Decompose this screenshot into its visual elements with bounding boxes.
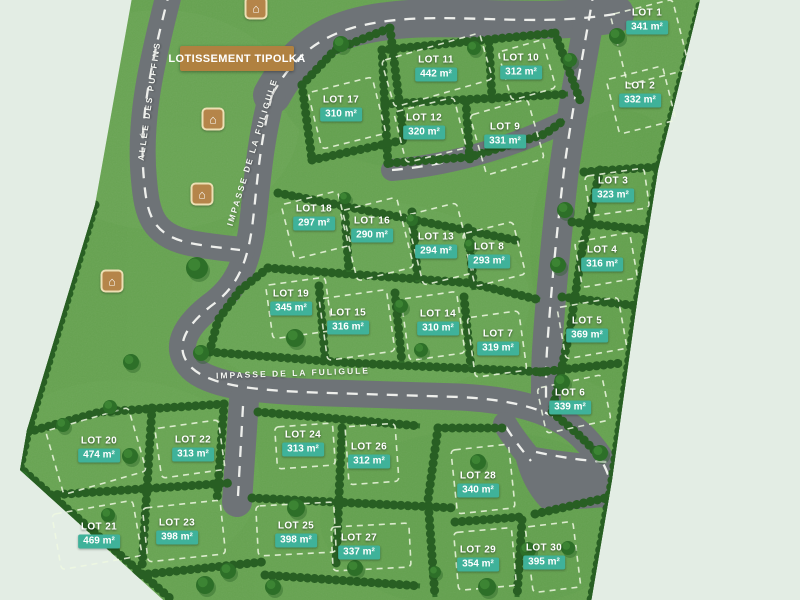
- lot-23-area-badge: 398 m²: [156, 531, 198, 545]
- lot-8-label: LOT 8: [474, 242, 504, 253]
- tree-highlight: [407, 215, 414, 222]
- lot-21-area-badge: 469 m²: [78, 535, 120, 549]
- lot-20-label: LOT 20: [81, 436, 117, 447]
- tree-highlight: [57, 419, 65, 427]
- lot-3-label: LOT 3: [598, 176, 628, 187]
- house-icon: ⌂: [245, 0, 268, 20]
- lot-25-area-badge: 398 m²: [275, 534, 317, 548]
- tree-icon: [685, 51, 703, 69]
- lot-marker-20[interactable]: LOT 20474 m²: [78, 436, 120, 463]
- tree-highlight: [188, 259, 200, 271]
- lot-24-area-badge: 313 m²: [282, 443, 324, 457]
- lot-22-label: LOT 22: [175, 435, 211, 446]
- house-icon: ⌂: [191, 183, 214, 206]
- tree-highlight: [395, 300, 403, 308]
- tree-highlight: [480, 579, 490, 589]
- site-plan-map: LOTISSEMENT TIPOLKA ALLÉE DES PUFFINS IM…: [0, 0, 800, 600]
- tree-highlight: [594, 446, 603, 455]
- lot-marker-30[interactable]: LOT 30395 m²: [523, 543, 565, 570]
- tree-highlight: [430, 567, 437, 574]
- house-icon: ⌂: [202, 108, 225, 131]
- tree-highlight: [556, 375, 565, 384]
- lot-16-area-badge: 290 m²: [351, 229, 393, 243]
- lot-marker-11[interactable]: LOT 11442 m²: [415, 55, 457, 82]
- tree-icon: [15, 471, 29, 485]
- lot-marker-12[interactable]: LOT 12320 m²: [403, 113, 445, 140]
- lot-4-label: LOT 4: [587, 245, 617, 256]
- lot-8-area-badge: 293 m²: [468, 255, 510, 269]
- lot-marker-13[interactable]: LOT 13294 m²: [415, 232, 457, 259]
- lot-2-area-badge: 332 m²: [619, 94, 661, 108]
- lot-2-label: LOT 2: [625, 81, 655, 92]
- hedge-bushes: [466, 102, 470, 163]
- tree-highlight: [340, 193, 347, 200]
- lot-marker-26[interactable]: LOT 26312 m²: [348, 442, 390, 469]
- lot-marker-7[interactable]: LOT 7319 m²: [477, 329, 519, 356]
- tree-highlight: [267, 580, 276, 589]
- lot-29-label: LOT 29: [460, 545, 496, 556]
- lot-7-label: LOT 7: [483, 329, 513, 340]
- lot-5-area-badge: 369 m²: [566, 329, 608, 343]
- lot-26-label: LOT 26: [351, 442, 387, 453]
- tree-shadow: [687, 54, 705, 72]
- lot-marker-8[interactable]: LOT 8293 m²: [468, 242, 510, 269]
- tree-highlight: [611, 29, 620, 38]
- lot-29-area-badge: 354 m²: [457, 558, 499, 572]
- lot-marker-25[interactable]: LOT 25398 m²: [275, 521, 317, 548]
- road-turnaround: [516, 444, 640, 509]
- lot-14-label: LOT 14: [420, 309, 456, 320]
- lot-marker-19[interactable]: LOT 19345 m²: [270, 289, 312, 316]
- lot-6-area-badge: 339 m²: [549, 401, 591, 415]
- tree-highlight: [198, 577, 208, 587]
- tree-highlight: [289, 500, 299, 510]
- tree-icon: [34, 515, 50, 531]
- lot-marker-1[interactable]: LOT 1341 m²: [626, 8, 668, 35]
- lot-1-area-badge: 341 m²: [626, 21, 668, 35]
- lot-marker-18[interactable]: LOT 18297 m²: [293, 204, 335, 231]
- tree-highlight: [104, 401, 112, 409]
- lot-marker-16[interactable]: LOT 16290 m²: [351, 216, 393, 243]
- lot-1-label: LOT 1: [632, 8, 662, 19]
- tree-highlight: [124, 449, 133, 458]
- lot-6-label: LOT 6: [555, 388, 585, 399]
- lot-11-area-badge: 442 m²: [415, 68, 457, 82]
- lot-13-area-badge: 294 m²: [415, 245, 457, 259]
- tree-highlight: [472, 455, 481, 464]
- lot-marker-21[interactable]: LOT 21469 m²: [78, 522, 120, 549]
- tree-icon: [23, 541, 37, 555]
- lot-16-label: LOT 16: [354, 216, 390, 227]
- lot-marker-14[interactable]: LOT 14310 m²: [417, 309, 459, 336]
- tree-icon: [22, 492, 38, 508]
- lot-14-area-badge: 310 m²: [417, 322, 459, 336]
- lot-10-label: LOT 10: [503, 53, 539, 64]
- lot-5-label: LOT 5: [572, 316, 602, 327]
- house-icon: ⌂: [101, 270, 124, 293]
- lot-marker-10[interactable]: LOT 10312 m²: [500, 53, 542, 80]
- tree-highlight: [559, 203, 568, 212]
- lot-marker-29[interactable]: LOT 29354 m²: [457, 545, 499, 572]
- lot-marker-28[interactable]: LOT 28340 m²: [457, 471, 499, 498]
- tree-highlight: [468, 42, 476, 50]
- lot-30-area-badge: 395 m²: [523, 556, 565, 570]
- lot-25-label: LOT 25: [278, 521, 314, 532]
- hedge-bushes: [517, 520, 522, 597]
- tree-highlight: [16, 472, 24, 480]
- lot-marker-24[interactable]: LOT 24313 m²: [282, 430, 324, 457]
- tree-highlight: [564, 54, 572, 62]
- lot-15-label: LOT 15: [330, 308, 366, 319]
- lot-marker-17[interactable]: LOT 17310 m²: [320, 95, 362, 122]
- lot-marker-23[interactable]: LOT 23398 m²: [156, 518, 198, 545]
- lot-13-label: LOT 13: [418, 232, 454, 243]
- lot-17-area-badge: 310 m²: [320, 108, 362, 122]
- lot-27-label: LOT 27: [341, 533, 377, 544]
- lot-marker-4[interactable]: LOT 4316 m²: [581, 245, 623, 272]
- lot-27-area-badge: 337 m²: [338, 546, 380, 560]
- lot-20-area-badge: 474 m²: [78, 449, 120, 463]
- lot-15-area-badge: 316 m²: [327, 321, 369, 335]
- tree-highlight: [125, 355, 134, 364]
- lot-marker-6[interactable]: LOT 6339 m²: [549, 388, 591, 415]
- lot-marker-15[interactable]: LOT 15316 m²: [327, 308, 369, 335]
- map-canvas: [0, 0, 800, 600]
- lot-marker-2[interactable]: LOT 2332 m²: [619, 81, 661, 108]
- lot-9-area-badge: 331 m²: [484, 135, 526, 149]
- lot-marker-9[interactable]: LOT 9331 m²: [484, 122, 526, 149]
- tree-shadow: [17, 474, 31, 488]
- lot-17-label: LOT 17: [323, 95, 359, 106]
- lot-10-area-badge: 312 m²: [500, 66, 542, 80]
- lot-28-area-badge: 340 m²: [457, 484, 499, 498]
- tree-highlight: [335, 37, 344, 46]
- lot-marker-3[interactable]: LOT 3323 m²: [592, 176, 634, 203]
- tree-highlight: [415, 344, 423, 352]
- lot-22-area-badge: 313 m²: [172, 448, 214, 462]
- lot-4-area-badge: 316 m²: [581, 258, 623, 272]
- lot-11-label: LOT 11: [418, 55, 454, 66]
- tree-highlight: [24, 493, 33, 502]
- lot-23-label: LOT 23: [159, 518, 195, 529]
- estate-name-banner: LOTISSEMENT TIPOLKA: [180, 46, 294, 71]
- lot-24-label: LOT 24: [285, 430, 321, 441]
- tree-highlight: [102, 509, 110, 517]
- tree-shadow: [24, 495, 40, 511]
- lot-3-area-badge: 323 m²: [592, 189, 634, 203]
- lot-19-area-badge: 345 m²: [270, 302, 312, 316]
- tree-highlight: [349, 561, 358, 570]
- lot-19-label: LOT 19: [273, 289, 309, 300]
- lot-marker-22[interactable]: LOT 22313 m²: [172, 435, 214, 462]
- lot-7-area-badge: 319 m²: [477, 342, 519, 356]
- lot-28-label: LOT 28: [460, 471, 496, 482]
- tree-shadow: [25, 544, 39, 558]
- lot-18-label: LOT 18: [296, 204, 332, 215]
- lot-26-area-badge: 312 m²: [348, 455, 390, 469]
- lot-18-area-badge: 297 m²: [293, 217, 335, 231]
- lot-21-label: LOT 21: [81, 522, 117, 533]
- tree-highlight: [222, 564, 231, 573]
- lot-9-label: LOT 9: [490, 122, 520, 133]
- lot-marker-27[interactable]: LOT 27337 m²: [338, 533, 380, 560]
- tree-highlight: [24, 542, 32, 550]
- tree-highlight: [288, 330, 298, 340]
- lot-marker-5[interactable]: LOT 5369 m²: [566, 316, 608, 343]
- tree-shadow: [52, 558, 68, 574]
- lot-12-area-badge: 320 m²: [403, 126, 445, 140]
- tree-shadow: [36, 518, 52, 534]
- lot-30-label: LOT 30: [526, 543, 562, 554]
- tree-highlight: [36, 516, 45, 525]
- tree-highlight: [552, 258, 561, 267]
- lot-12-label: LOT 12: [406, 113, 442, 124]
- tree-highlight: [195, 346, 204, 355]
